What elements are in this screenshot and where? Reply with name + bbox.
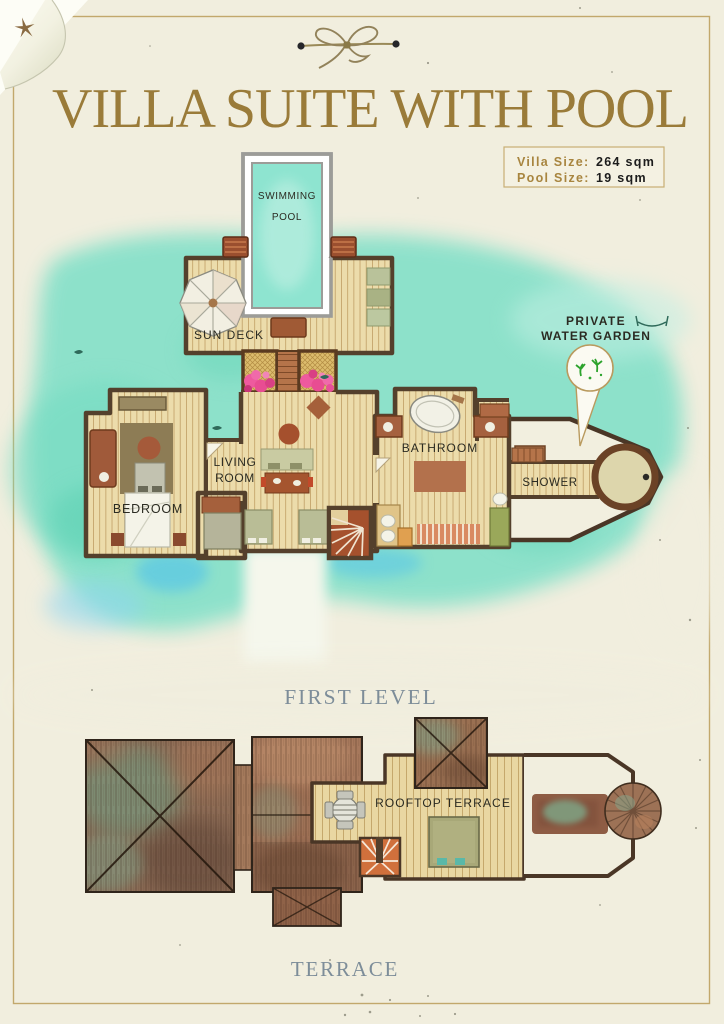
svg-text:Villa Size:: Villa Size: [517,155,589,169]
svg-text:Pool Size:: Pool Size: [517,171,590,185]
svg-text:ROOFTOP TERRACE: ROOFTOP TERRACE [375,796,511,810]
svg-text:FIRST LEVEL: FIRST LEVEL [284,685,438,709]
svg-text:SHOWER: SHOWER [522,477,577,489]
svg-text:PRIVATE: PRIVATE [566,314,626,328]
svg-text:19 sqm: 19 sqm [596,171,647,185]
svg-text:SWIMMING: SWIMMING [258,191,316,202]
svg-text:POOL: POOL [272,212,302,223]
svg-text:WATER GARDEN: WATER GARDEN [541,329,651,343]
svg-text:SUN DECK: SUN DECK [194,328,264,342]
svg-text:264 sqm: 264 sqm [596,155,655,169]
svg-text:BATHROOM: BATHROOM [402,441,478,455]
svg-text:TERRACE: TERRACE [291,957,399,981]
svg-text:LIVING: LIVING [214,455,257,469]
svg-text:VILLA SUITE WITH POOL: VILLA SUITE WITH POOL [52,78,688,140]
svg-text:BEDROOM: BEDROOM [113,502,183,516]
svg-text:ROOM: ROOM [215,471,255,485]
